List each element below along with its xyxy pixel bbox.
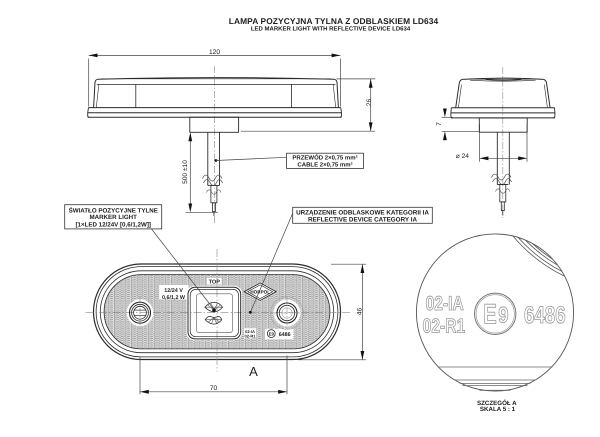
svg-text:7: 7	[436, 122, 443, 126]
svg-text:26: 26	[366, 99, 373, 107]
svg-text:LED MARKER LIGHT WITH REFLECTI: LED MARKER LIGHT WITH REFLECTIVE DEVICE …	[251, 26, 411, 33]
svg-text:[1×LED 12/24V [0,6/1,2W]]: [1×LED 12/24V [0,6/1,2W]]	[75, 221, 150, 228]
svg-text:MARKER LIGHT: MARKER LIGHT	[89, 214, 137, 221]
svg-text:CABLE 2×0,75 mm²: CABLE 2×0,75 mm²	[297, 162, 352, 169]
svg-text:02-R1: 02-R1	[245, 334, 257, 339]
svg-text:46: 46	[357, 308, 364, 316]
svg-text:12/24 V: 12/24 V	[164, 288, 183, 294]
svg-text:E: E	[483, 298, 496, 329]
svg-text:6486: 6486	[524, 302, 566, 329]
svg-text:PRZEWÓD 2×0,75 mm²: PRZEWÓD 2×0,75 mm²	[292, 154, 357, 162]
svg-text:E9: E9	[269, 331, 275, 336]
svg-text:SKALA 5 : 1: SKALA 5 : 1	[480, 406, 516, 413]
svg-text:HORPOL: HORPOL	[250, 290, 270, 295]
svg-text:6486: 6486	[279, 332, 291, 338]
svg-text:9: 9	[498, 303, 508, 328]
svg-text:02-IA: 02-IA	[426, 293, 464, 315]
svg-text:LAMPA POZYCYJNA TYLNA Z ODBLAS: LAMPA POZYCYJNA TYLNA Z ODBLASKIEM LD634	[229, 16, 439, 26]
svg-text:⌀ 24: ⌀ 24	[456, 153, 469, 160]
svg-text:120: 120	[209, 49, 220, 56]
svg-text:500 ±10: 500 ±10	[182, 160, 189, 184]
svg-text:TOP: TOP	[209, 279, 221, 285]
svg-text:02-R1: 02-R1	[423, 316, 465, 338]
svg-text:0,6/1,2 W: 0,6/1,2 W	[162, 295, 186, 301]
svg-text:70: 70	[210, 385, 218, 392]
svg-text:ŚWIATŁO POZYCYJNE TYLNE: ŚWIATŁO POZYCYJNE TYLNE	[69, 206, 158, 214]
svg-text:A: A	[249, 364, 258, 379]
svg-text:REFLECTIVE DEVICE CATEGORY IA: REFLECTIVE DEVICE CATEGORY IA	[308, 217, 417, 224]
